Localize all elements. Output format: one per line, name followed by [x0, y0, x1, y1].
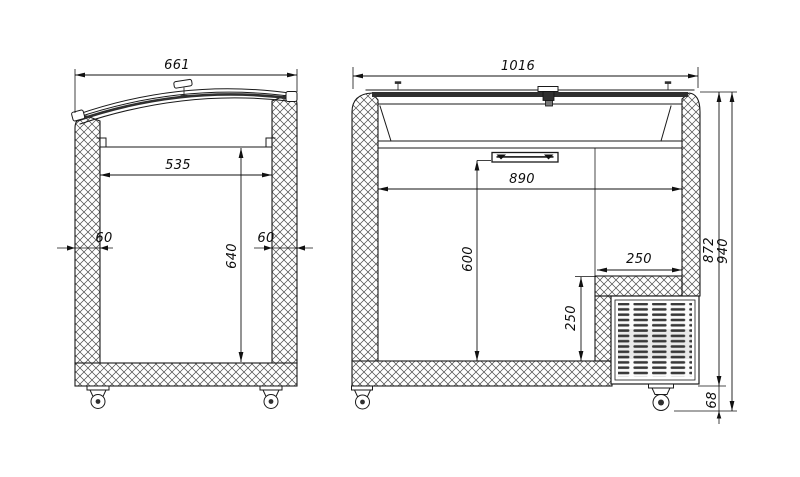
lid-end-cap-right [286, 92, 297, 102]
dim-left-overall-width: 661 [152, 58, 202, 74]
sliding-glass-lid [366, 81, 694, 106]
dim-left-inner-height: 640 [225, 231, 241, 281]
compressor-compartment [611, 296, 699, 384]
dim-right-step-width: 250 [614, 252, 664, 268]
caster-right [260, 386, 282, 409]
vent-grille [618, 303, 692, 377]
caster-left [352, 386, 373, 409]
front-section-view [352, 67, 738, 424]
dim-right-inner-height: 600 [461, 234, 477, 284]
caster-right [649, 384, 674, 411]
lid-handle [174, 79, 193, 88]
dim-right-overall-width: 1016 [492, 59, 544, 75]
dim-right-overall-height: 940 [716, 226, 732, 276]
dim-left-inner-width: 535 [153, 158, 203, 174]
caster-left [87, 386, 109, 409]
dim-left-wall-thickness-left: 60 [89, 231, 119, 247]
dim-left-wall-thickness-right: 60 [251, 231, 281, 247]
interior-lamp [492, 153, 558, 163]
dim-right-step-height: 250 [564, 293, 580, 343]
dim-right-inner-width: 890 [497, 172, 547, 188]
dim-right-base-height: 68 [705, 382, 721, 418]
freezer-technical-drawing: 661 535 60 60 640 1016 890 600 250 250 8… [0, 0, 800, 477]
curved-glass-lid [71, 79, 297, 124]
drawing-canvas [0, 0, 800, 477]
